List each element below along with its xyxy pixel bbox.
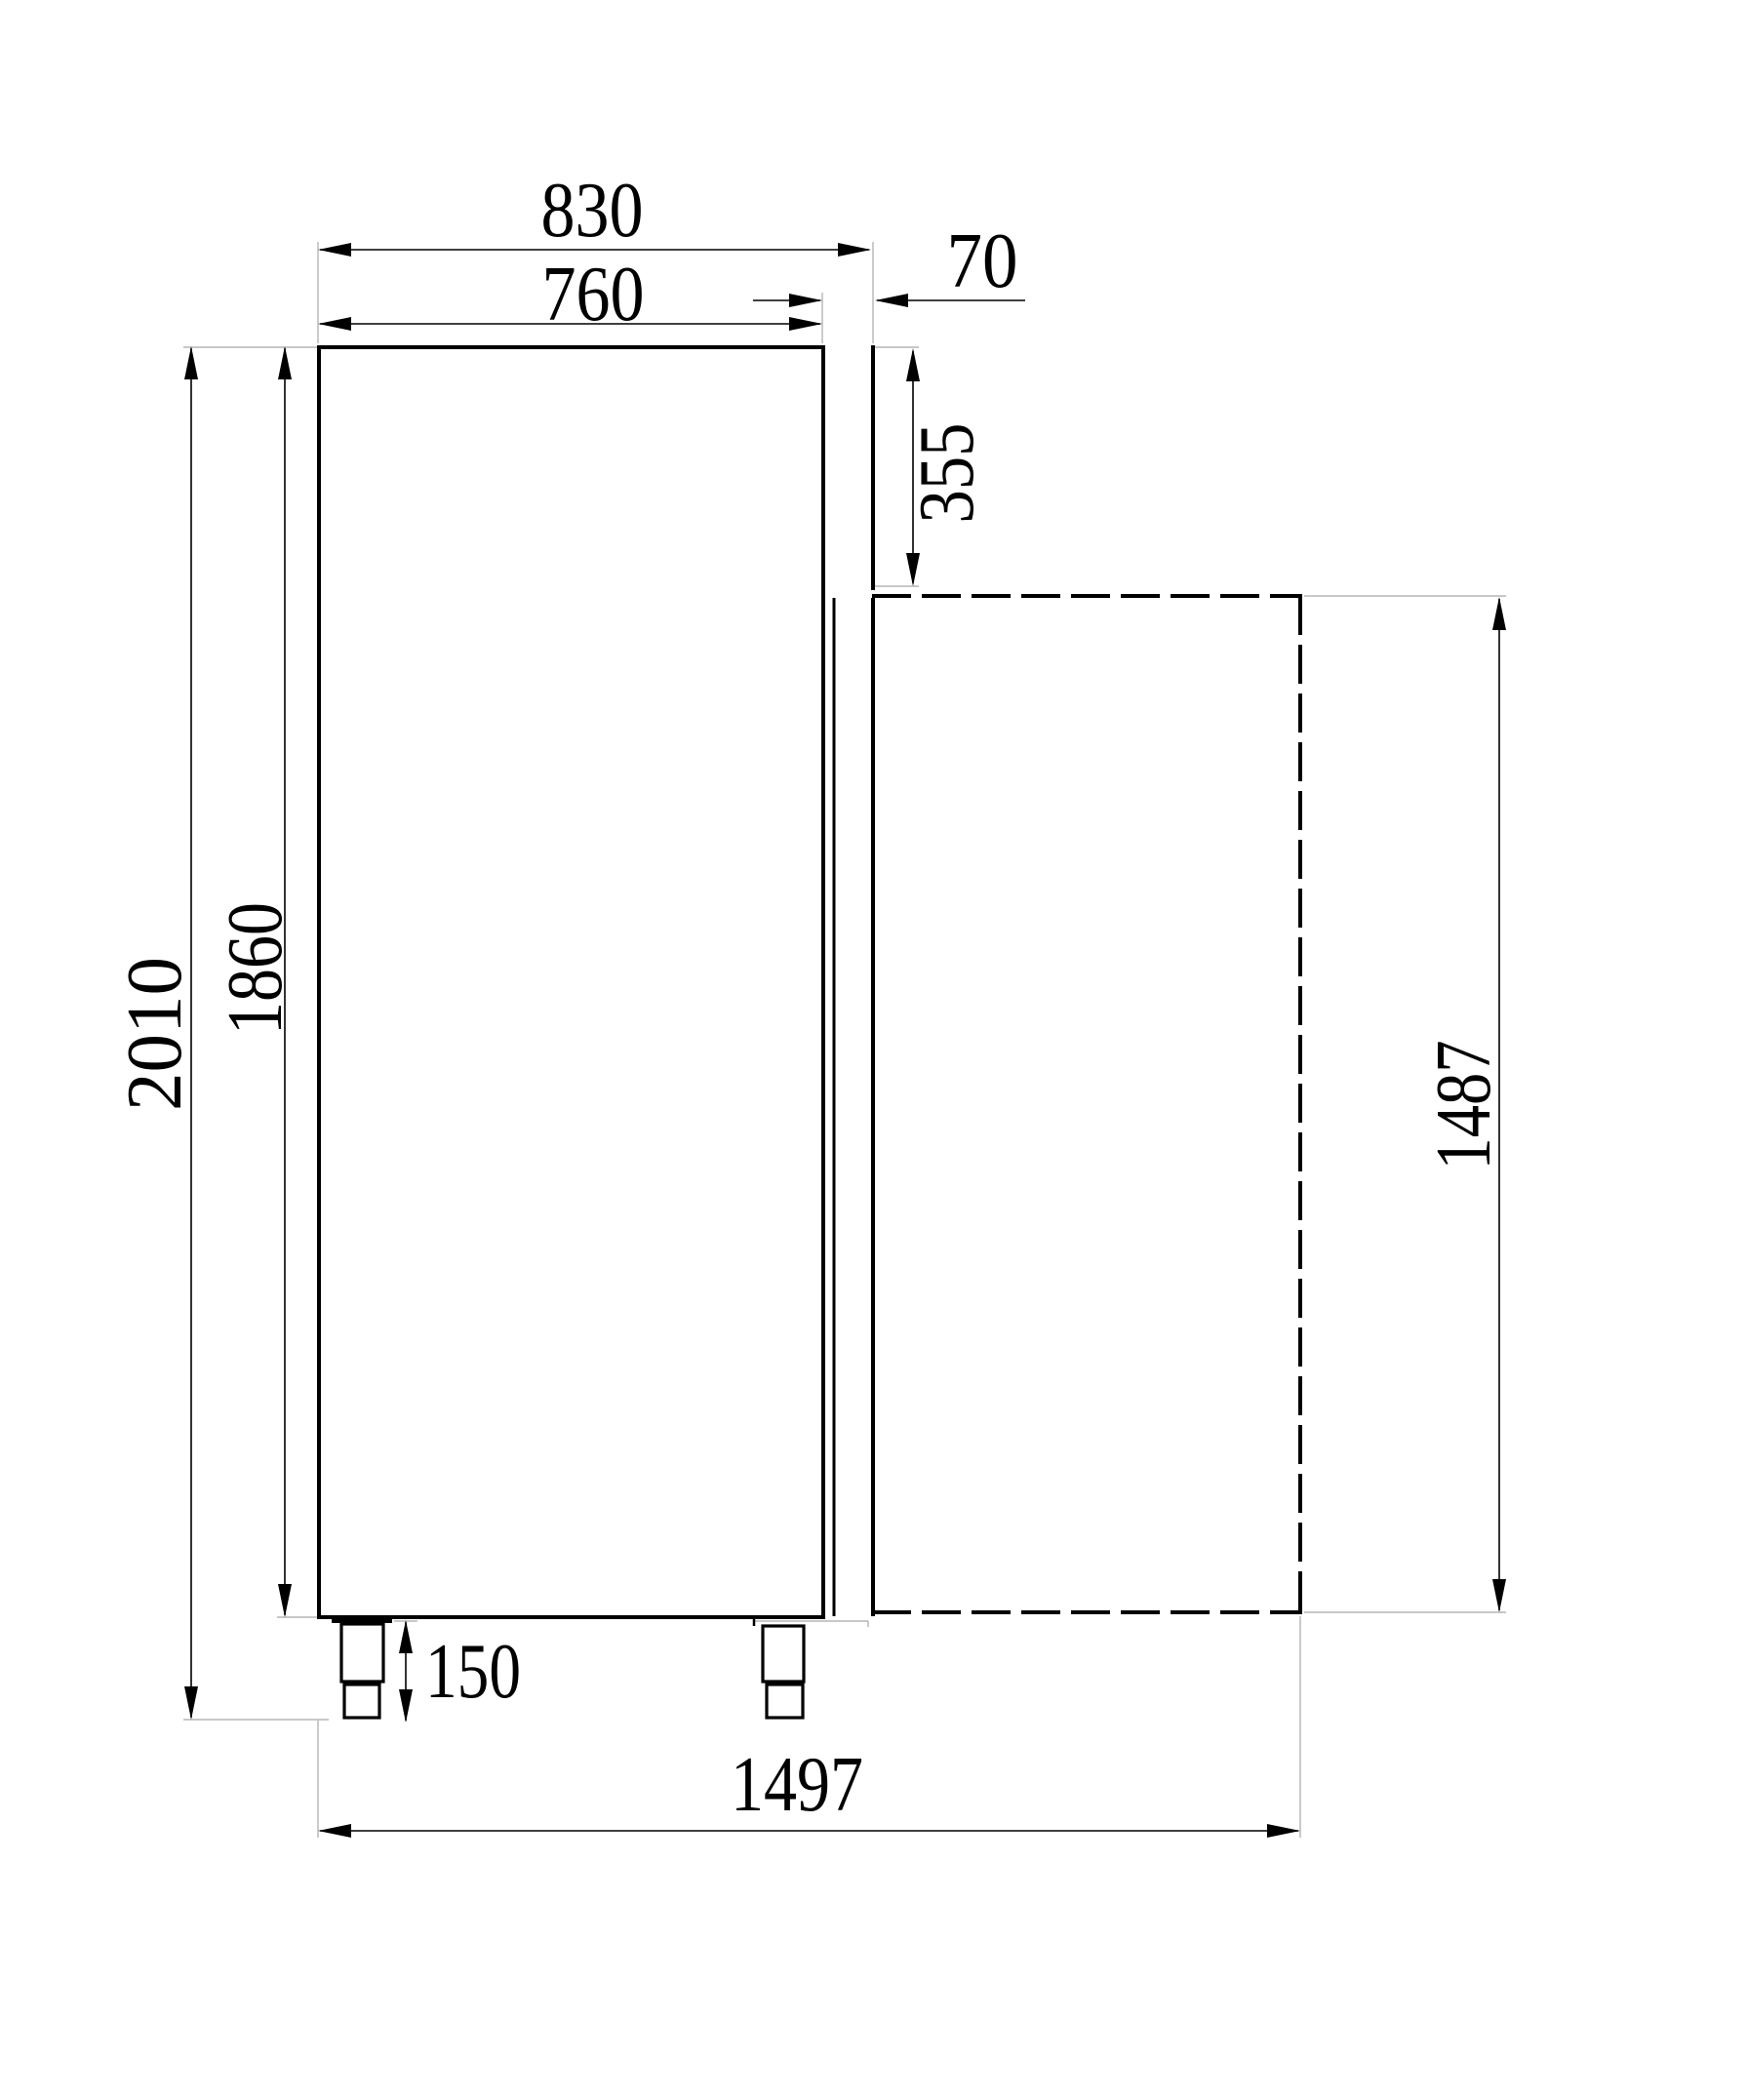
svg-text:830: 830	[541, 168, 644, 254]
svg-text:2010: 2010	[112, 957, 198, 1111]
svg-text:760: 760	[542, 252, 645, 337]
svg-text:1487: 1487	[1421, 1041, 1507, 1170]
svg-text:1497: 1497	[731, 1742, 863, 1828]
svg-text:355: 355	[904, 423, 990, 524]
svg-text:150: 150	[425, 1629, 521, 1715]
svg-text:1860: 1860	[213, 902, 298, 1035]
svg-text:70: 70	[947, 218, 1018, 304]
